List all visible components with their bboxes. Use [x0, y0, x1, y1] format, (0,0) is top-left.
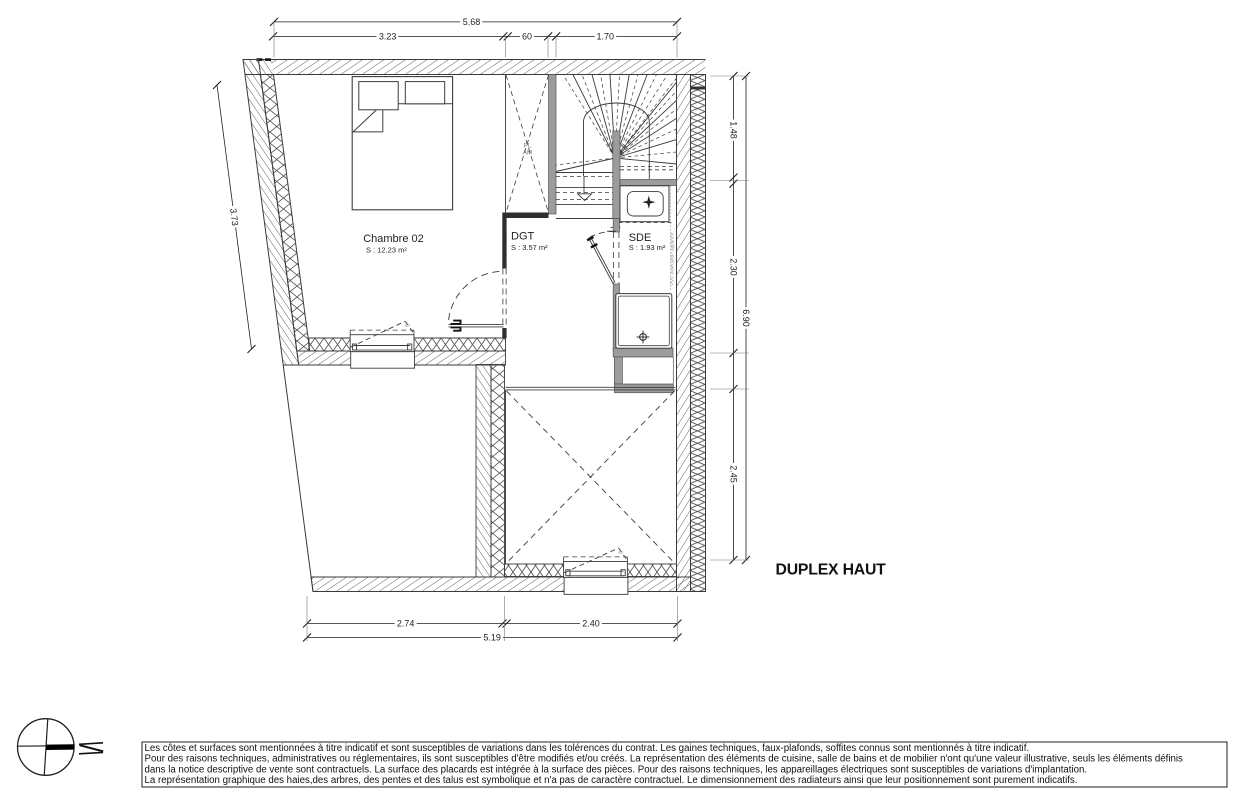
svg-text:dans la notice descriptive de: dans la notice descriptive de vente sont… [145, 764, 1088, 775]
svg-text:AM: AM [523, 150, 533, 157]
svg-text:5.68: 5.68 [463, 17, 481, 27]
svg-text:Chambre 02: Chambre 02 [363, 233, 424, 245]
svg-text:60: 60 [405, 323, 410, 328]
svg-text:60: 60 [618, 550, 623, 555]
svg-text:1.70: 1.70 [597, 31, 615, 41]
svg-text:S : 1.93 m²: S : 1.93 m² [629, 243, 666, 252]
svg-text:La représentation graphique d: La représentation graphique des haies,de… [145, 775, 1078, 786]
svg-text:Pour des raisons techniques, a: Pour des raisons techniques, administrat… [145, 754, 1184, 765]
svg-text:2.45: 2.45 [728, 465, 738, 483]
svg-text:5.19: 5.19 [483, 633, 501, 643]
svg-text:2.30: 2.30 [728, 258, 738, 276]
svg-text:2.40: 2.40 [582, 619, 600, 629]
svg-text:DUPLEX HAUT: DUPLEX HAUT [776, 562, 887, 579]
svg-text:PVC évacuation apparent: PVC évacuation apparent [670, 232, 675, 285]
svg-text:1.48: 1.48 [728, 121, 738, 139]
svg-text:2.74: 2.74 [397, 619, 415, 629]
svg-text:PL: PL [524, 143, 532, 150]
svg-text:DGT: DGT [511, 231, 535, 243]
svg-text:S : 12.23 m²: S : 12.23 m² [366, 246, 407, 255]
svg-text:3.23: 3.23 [379, 31, 397, 41]
svg-text:Les côtes et surfaces sont men: Les côtes et surfaces sont mentionnées à… [145, 743, 1030, 754]
svg-text:S : 3.57 m²: S : 3.57 m² [511, 243, 548, 252]
svg-text:6.90: 6.90 [741, 309, 751, 327]
svg-text:60: 60 [522, 31, 532, 41]
